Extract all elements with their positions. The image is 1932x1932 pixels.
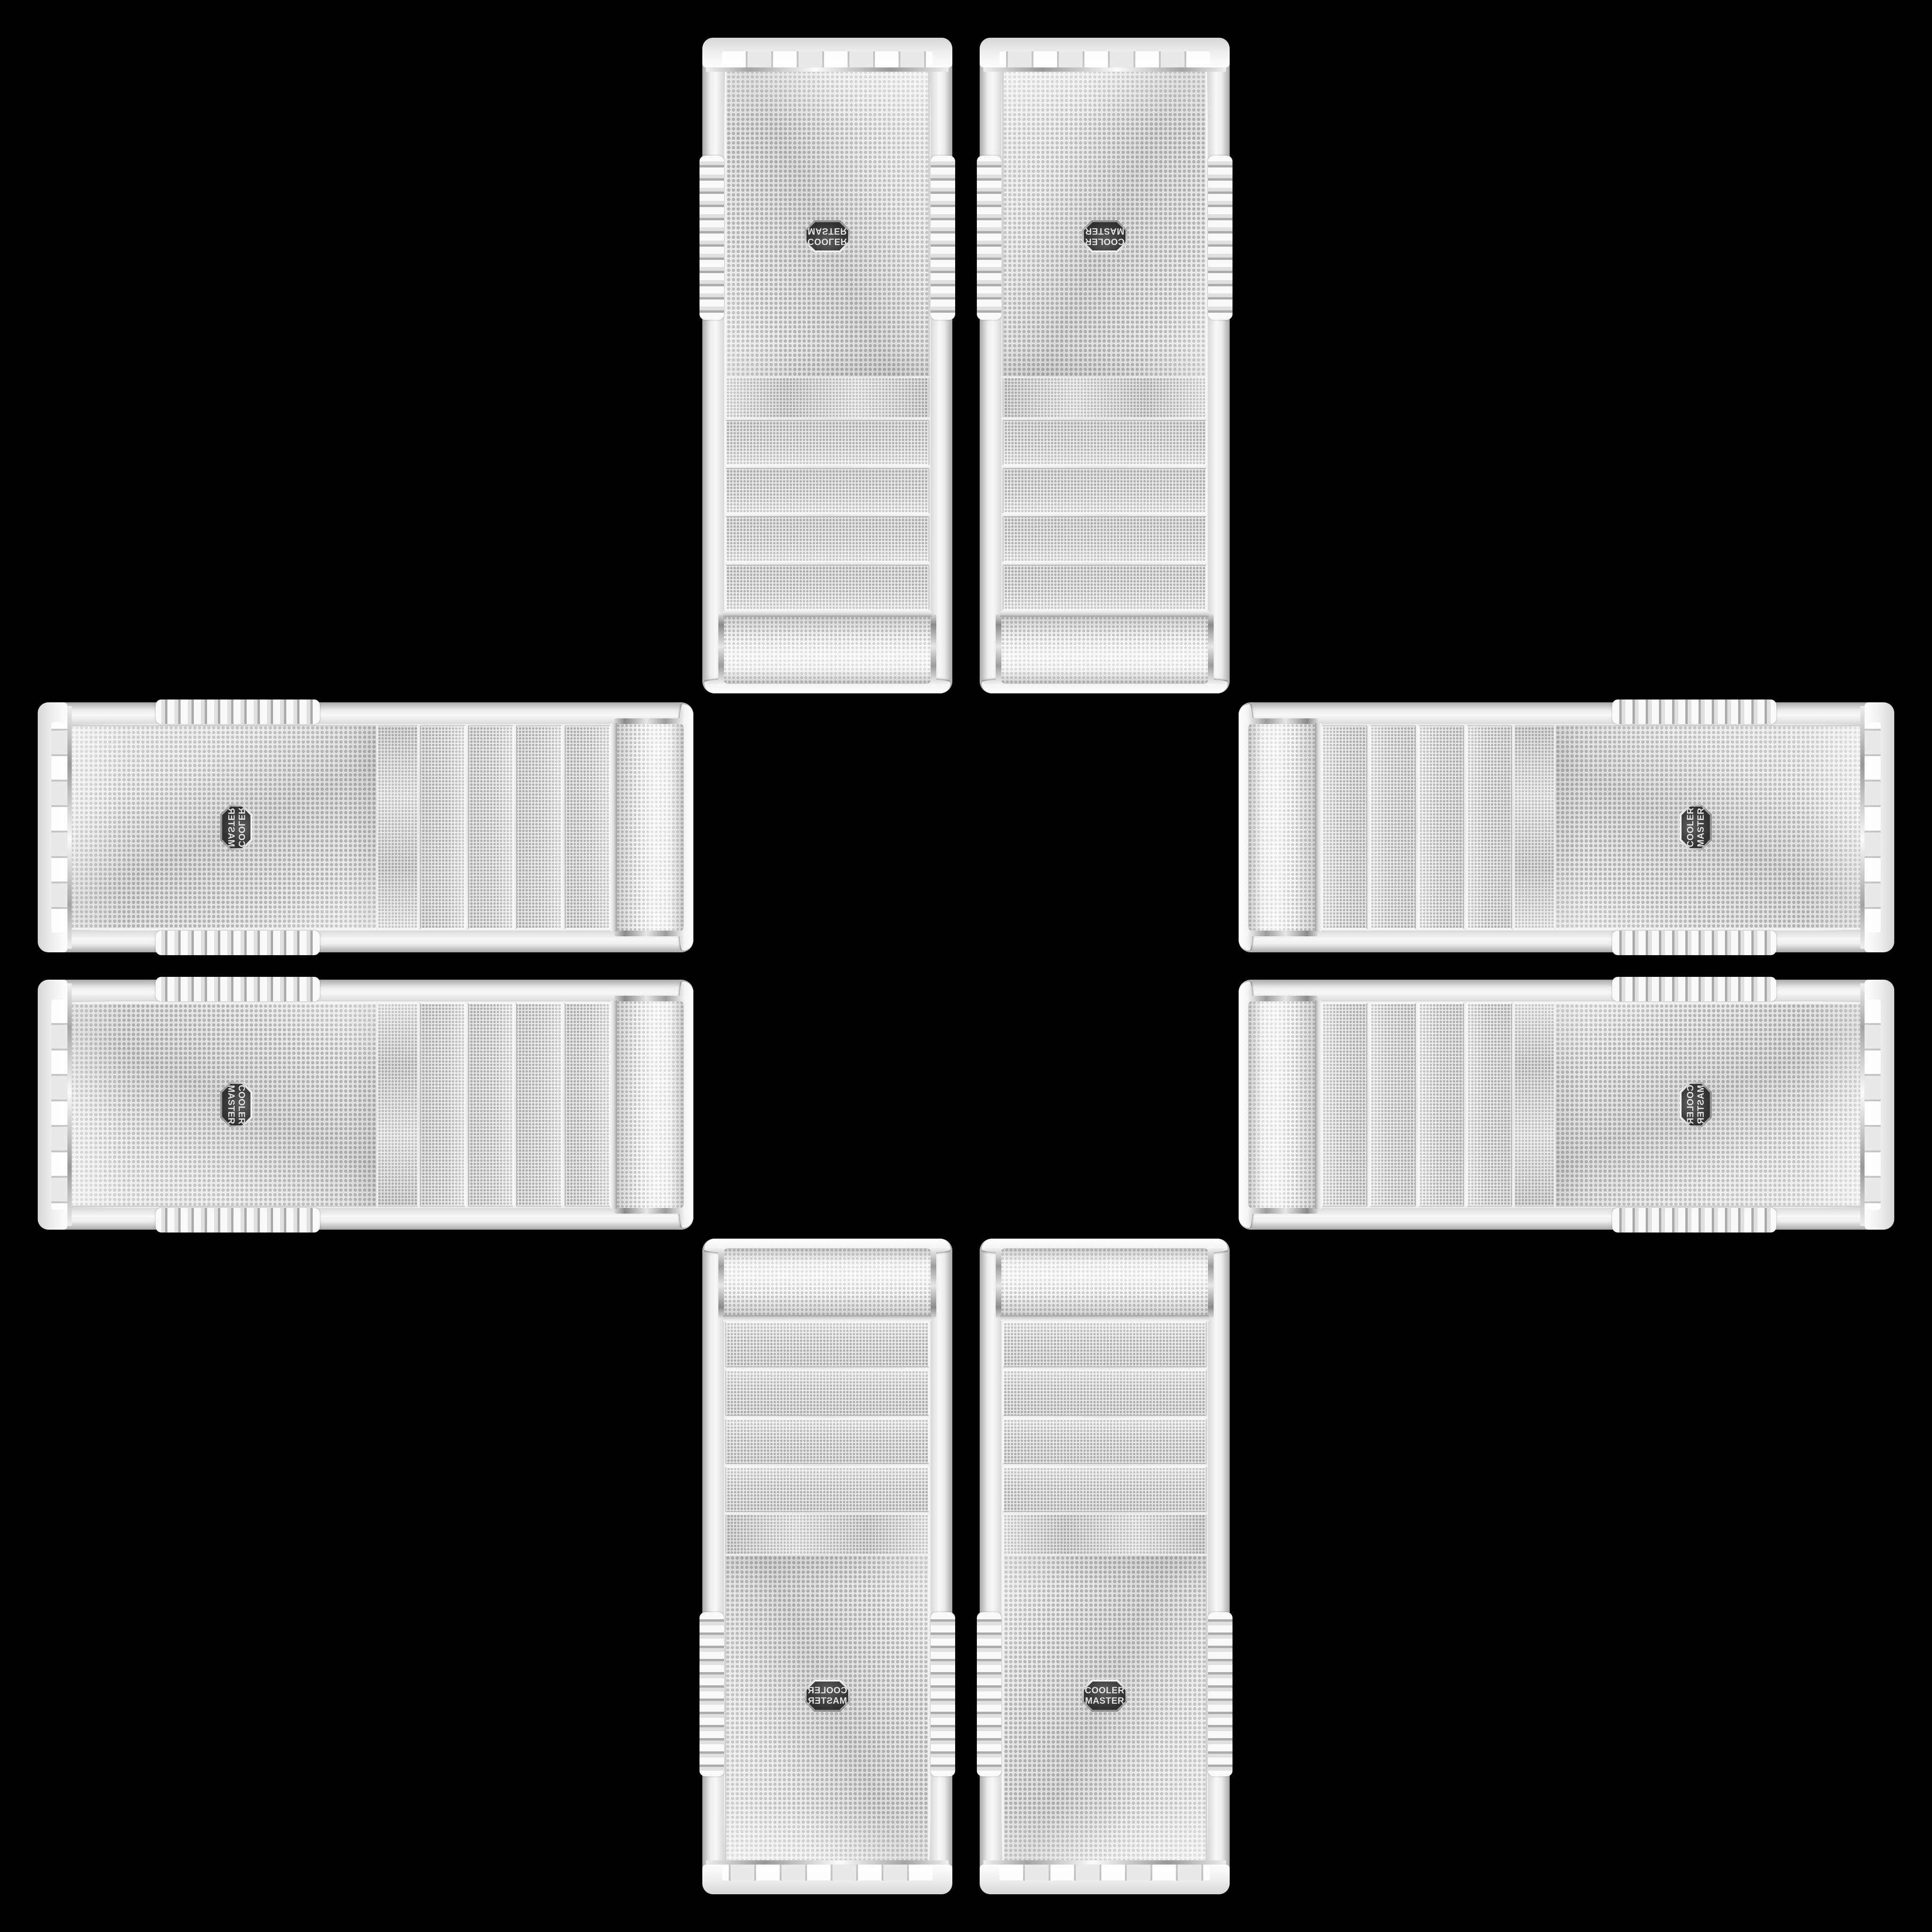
side-grip-ribs-left	[156, 931, 320, 955]
cooler-master-badge: COOLER MASTER	[220, 1082, 252, 1127]
case-top-arm-right: COOLER MASTER	[980, 38, 1230, 693]
drive-bay-cover	[725, 565, 930, 610]
chrome-trim-bottom	[1860, 983, 1865, 1226]
side-grip-ribs-right	[700, 1612, 724, 1776]
cooler-master-logo: COOLER MASTER	[807, 222, 848, 250]
mesh-strip	[1515, 1002, 1554, 1207]
cooler-master-logo: COOLER MASTER	[222, 807, 250, 848]
bezel-groove	[1000, 611, 1209, 617]
badge-text-line-2: MASTER	[1696, 1085, 1706, 1124]
product-collage-canvas: COOLER MASTER	[0, 0, 1932, 1932]
drive-bay-cover	[1418, 725, 1464, 930]
case-side-frame-right	[1246, 1208, 1894, 1230]
cooler-master-badge: COOLER MASTER	[805, 220, 850, 252]
cooler-master-badge: COOLER MASTER	[1680, 805, 1712, 850]
drive-bay-cover	[1002, 468, 1207, 514]
bottom-cap-tabs	[51, 999, 67, 1210]
chrome-trim-bottom	[983, 1860, 1226, 1865]
drive-bay-stack	[1002, 420, 1207, 610]
badge-text-line-2: MASTER	[226, 808, 236, 847]
drive-bay-cover	[565, 725, 610, 930]
mesh-strip	[725, 1515, 930, 1554]
bottom-cap-tabs	[722, 51, 933, 67]
chrome-post-right	[614, 1208, 686, 1214]
cooler-master-badge: COOLER MASTER	[805, 1680, 850, 1712]
drive-bay-cover	[725, 468, 930, 514]
chrome-trim-bottom	[67, 983, 72, 1226]
drive-bay-cover	[1322, 1002, 1367, 1207]
drive-bay-stack	[420, 725, 610, 930]
case-side-frame-left	[38, 931, 686, 952]
side-grip-ribs-left	[700, 156, 724, 320]
drive-bay-cover	[1002, 1466, 1207, 1512]
badge-text-line-2: MASTER	[808, 226, 847, 236]
drive-bay-stack	[725, 1322, 930, 1512]
drive-bay-cover	[725, 1418, 930, 1464]
top-vent-mesh-band	[1248, 1000, 1315, 1209]
bezel-groove	[1000, 1315, 1209, 1321]
side-grip-ribs-left	[931, 1612, 955, 1776]
drive-bay-cover	[516, 725, 562, 930]
badge-text-line-1: COOLER	[1085, 1686, 1124, 1696]
drive-bay-cover	[516, 1002, 562, 1207]
cooler-master-badge: COOLER MASTER	[1082, 220, 1127, 252]
case-bottom-cap	[980, 1865, 1230, 1894]
case-bottom-cap	[1865, 980, 1894, 1230]
badge-text-line-2: MASTER	[226, 1085, 236, 1124]
case-side-frame-left	[980, 1246, 1001, 1894]
drive-bay-cover	[1002, 1370, 1207, 1416]
case-side-frame-left	[931, 1246, 952, 1894]
badge-text-line-1: COOLER	[1686, 808, 1696, 847]
side-grip-ribs-left	[1612, 931, 1776, 955]
case-side-frame-right	[38, 702, 686, 724]
case-side-frame-left	[702, 38, 724, 686]
drive-bay-cover	[725, 516, 930, 562]
top-vent-mesh-band	[723, 617, 932, 684]
drive-bay-cover	[1002, 1322, 1207, 1367]
cooler-master-logo: COOLER MASTER	[1682, 807, 1710, 848]
drive-bay-stack	[725, 420, 930, 610]
case-side-frame-right	[702, 1246, 724, 1894]
mesh-strip	[1002, 378, 1207, 417]
side-grip-ribs-left	[1208, 156, 1232, 320]
side-grip-ribs-left	[1612, 977, 1776, 1001]
bottom-cap-tabs	[999, 1865, 1210, 1881]
cooler-master-logo: COOLER MASTER	[1084, 222, 1125, 250]
chrome-post-right	[1246, 718, 1318, 724]
case-bottom-cap	[980, 38, 1230, 67]
drive-bay-cover	[420, 1002, 466, 1207]
badge-text-line-1: COOLER	[808, 1686, 847, 1696]
case-side-frame-left	[38, 980, 686, 1001]
badge-text-line-1: COOLER	[808, 237, 847, 247]
bottom-cap-tabs	[1865, 722, 1881, 933]
mesh-strip	[1002, 1515, 1207, 1554]
drive-bay-cover	[1466, 1002, 1512, 1207]
case-bottom-cap	[38, 980, 67, 1230]
side-grip-ribs-left	[977, 1612, 1001, 1776]
cooler-master-badge: COOLER MASTER	[220, 805, 252, 850]
bezel-groove	[723, 611, 932, 617]
case-right-arm-top: COOLER MASTER	[1239, 702, 1894, 952]
drive-bay-cover	[1466, 725, 1512, 930]
top-vent-mesh-band	[723, 1248, 932, 1315]
chrome-post-left	[1246, 996, 1318, 1001]
case-side-frame-right	[931, 38, 952, 686]
drive-bay-cover	[1002, 1418, 1207, 1464]
badge-text-line-1: COOLER	[237, 1085, 247, 1124]
drive-bay-cover	[1002, 565, 1207, 610]
chrome-post-right	[996, 614, 1001, 686]
chrome-post-left	[614, 931, 686, 936]
badge-text-line-2: MASTER	[808, 1696, 847, 1706]
top-vent-mesh-band	[617, 723, 684, 932]
case-side-frame-right	[980, 38, 1001, 686]
case-left-arm-bottom: COOLER MASTER	[38, 980, 693, 1230]
drive-bay-cover	[725, 1370, 930, 1416]
side-grip-ribs-right	[1208, 1612, 1232, 1776]
chrome-post-right	[1246, 1208, 1318, 1214]
case-side-frame-left	[1246, 931, 1894, 952]
drive-bay-cover	[1322, 725, 1367, 930]
chrome-post-left	[1208, 614, 1214, 686]
chrome-trim-bottom	[706, 67, 949, 72]
case-right-arm-bottom: COOLER MASTER	[1239, 980, 1894, 1230]
bezel-groove	[723, 1315, 932, 1321]
chrome-post-left	[1246, 931, 1318, 936]
drive-bay-cover	[1370, 1002, 1416, 1207]
top-vent-mesh-band	[1248, 723, 1315, 932]
case-side-frame-right	[1246, 702, 1894, 724]
drive-bay-cover	[725, 1322, 930, 1367]
drive-bay-cover	[725, 1466, 930, 1512]
case-bottom-arm-left: COOLER MASTER	[702, 1239, 952, 1894]
case-bottom-cap	[702, 38, 952, 67]
bezel-groove	[611, 723, 617, 932]
chrome-post-right	[931, 614, 936, 686]
drive-bay-cover	[468, 1002, 514, 1207]
top-vent-mesh-band	[1000, 1248, 1209, 1315]
cooler-master-badge: COOLER MASTER	[1680, 1082, 1712, 1127]
cooler-master-badge: COOLER MASTER	[1082, 1680, 1127, 1712]
chrome-post-right	[1208, 1246, 1214, 1318]
drive-bay-stack	[420, 1002, 610, 1207]
case-bottom-cap	[38, 702, 67, 952]
cooler-master-logo: COOLER MASTER	[1084, 1682, 1125, 1710]
bezel-groove	[1315, 723, 1321, 932]
top-vent-mesh-band	[1000, 617, 1209, 684]
chrome-post-left	[996, 1246, 1001, 1318]
case-side-frame-left	[1208, 38, 1230, 686]
bottom-cap-tabs	[51, 722, 67, 933]
side-grip-ribs-right	[156, 700, 320, 724]
page: { "canvas": { "width": 4096, "height": 4…	[0, 0, 1932, 1932]
bezel-groove	[1315, 1000, 1321, 1209]
badge-text-line-1: COOLER	[1085, 237, 1124, 247]
drive-bay-cover	[1418, 1002, 1464, 1207]
case-side-frame-left	[1246, 980, 1894, 1001]
mesh-strip	[378, 1002, 417, 1207]
chrome-post-left	[614, 996, 686, 1001]
case-bottom-arm-right: COOLER MASTER	[980, 1239, 1230, 1894]
drive-bay-cover	[420, 725, 466, 930]
case-side-frame-right	[38, 1208, 686, 1230]
drive-bay-stack	[1322, 1002, 1512, 1207]
top-vent-mesh-band	[617, 1000, 684, 1209]
cooler-master-logo: COOLER MASTER	[807, 1682, 848, 1710]
mesh-strip	[378, 725, 417, 930]
drive-bay-stack	[1322, 725, 1512, 930]
chrome-post-left	[931, 1246, 936, 1318]
drive-bay-cover	[1002, 420, 1207, 466]
case-side-frame-right	[1208, 1246, 1230, 1894]
side-grip-ribs-right	[1612, 1208, 1776, 1232]
chrome-trim-bottom	[67, 706, 72, 949]
drive-bay-cover	[725, 420, 930, 466]
badge-text-line-2: MASTER	[1085, 1696, 1124, 1706]
chrome-post-left	[718, 614, 724, 686]
drive-bay-stack	[1002, 1322, 1207, 1512]
case-bottom-cap	[1865, 702, 1894, 952]
drive-bay-cover	[1370, 725, 1416, 930]
cooler-master-logo: COOLER MASTER	[222, 1084, 250, 1125]
chrome-post-right	[718, 1246, 724, 1318]
badge-text-line-1: COOLER	[237, 808, 247, 847]
mesh-strip	[725, 378, 930, 417]
side-grip-ribs-left	[156, 977, 320, 1001]
cooler-master-logo: COOLER MASTER	[1682, 1084, 1710, 1125]
chrome-post-right	[614, 718, 686, 724]
badge-text-line-2: MASTER	[1696, 808, 1706, 847]
case-top-arm-left: COOLER MASTER	[702, 38, 952, 693]
side-grip-ribs-right	[1612, 700, 1776, 724]
side-grip-ribs-right	[931, 156, 955, 320]
badge-text-line-2: MASTER	[1085, 226, 1124, 236]
bottom-cap-tabs	[1865, 999, 1881, 1210]
chrome-trim-bottom	[706, 1860, 949, 1865]
chrome-trim-bottom	[983, 67, 1226, 72]
case-left-arm-top: COOLER MASTER	[38, 702, 693, 952]
badge-text-line-1: COOLER	[1686, 1085, 1696, 1124]
drive-bay-cover	[1002, 516, 1207, 562]
bottom-cap-tabs	[999, 51, 1210, 67]
case-bottom-cap	[702, 1865, 952, 1894]
drive-bay-cover	[565, 1002, 610, 1207]
drive-bay-cover	[468, 725, 514, 930]
side-grip-ribs-right	[156, 1208, 320, 1232]
side-grip-ribs-right	[977, 156, 1001, 320]
chrome-trim-bottom	[1860, 706, 1865, 949]
bezel-groove	[611, 1000, 617, 1209]
mesh-strip	[1515, 725, 1554, 930]
bottom-cap-tabs	[722, 1865, 933, 1881]
